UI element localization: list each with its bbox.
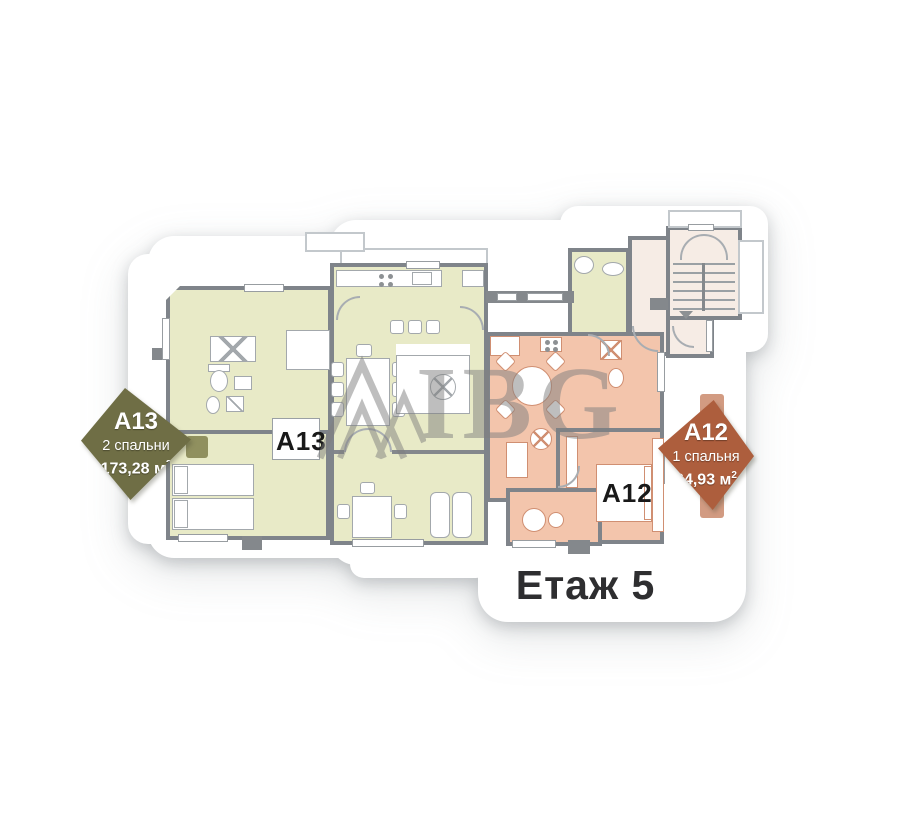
badge-a12[interactable]: A12 1 спальня 64,93 м2 xyxy=(658,400,754,510)
badge-a13[interactable]: A13 2 спальни 173,28 м2 xyxy=(81,388,191,500)
badge-a13-bedrooms: 2 спальни xyxy=(102,438,169,454)
badge-a12-bedrooms: 1 спальня xyxy=(672,449,739,465)
floorplan-image: A13 A12 IBG A13 2 спальни 173,28 м2 A12 … xyxy=(0,0,900,821)
badge-a13-unit: A13 xyxy=(114,410,158,434)
badge-a12-area: 64,93 м2 xyxy=(675,470,737,489)
badge-a12-unit: A12 xyxy=(684,421,728,445)
badge-a13-area: 173,28 м2 xyxy=(101,459,172,478)
